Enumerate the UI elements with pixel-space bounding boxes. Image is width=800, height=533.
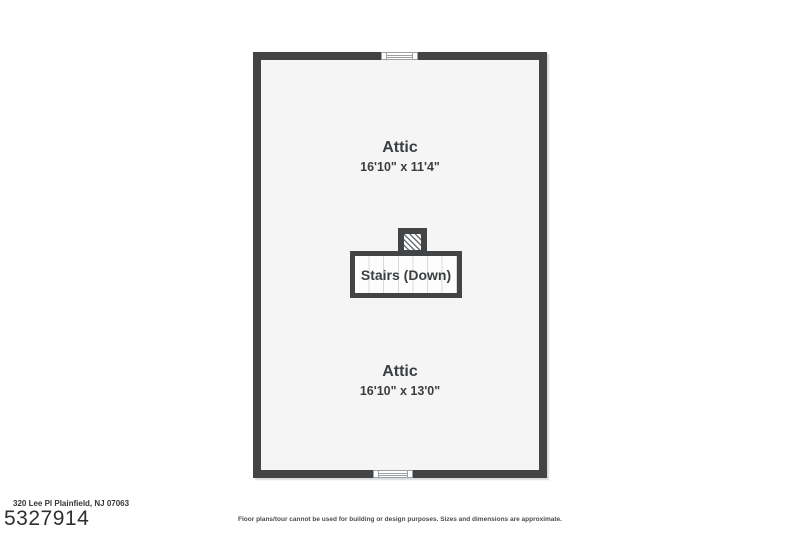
room-name: Attic xyxy=(253,362,547,381)
hatch-pattern xyxy=(404,234,421,250)
window-top-icon xyxy=(381,52,418,60)
room-label-attic-upper: Attic 16'10" x 11'4" xyxy=(253,138,547,174)
stairs-label: Stairs (Down) xyxy=(355,256,457,293)
room-dimensions: 16'10" x 13'0" xyxy=(253,384,547,398)
window-glass-icon xyxy=(386,55,413,58)
window-glass-icon xyxy=(378,473,408,476)
room-name: Attic xyxy=(253,138,547,157)
room-dimensions: 16'10" x 11'4" xyxy=(253,160,547,174)
attic-floorplan: Attic 16'10" x 11'4" Stairs (Down) Attic… xyxy=(253,52,547,478)
stairs-box: Stairs (Down) xyxy=(350,251,462,298)
window-bottom-icon xyxy=(373,470,413,478)
room-label-attic-lower: Attic 16'10" x 13'0" xyxy=(253,362,547,398)
disclaimer-text: Floor plans/tour cannot be used for buil… xyxy=(0,516,800,523)
